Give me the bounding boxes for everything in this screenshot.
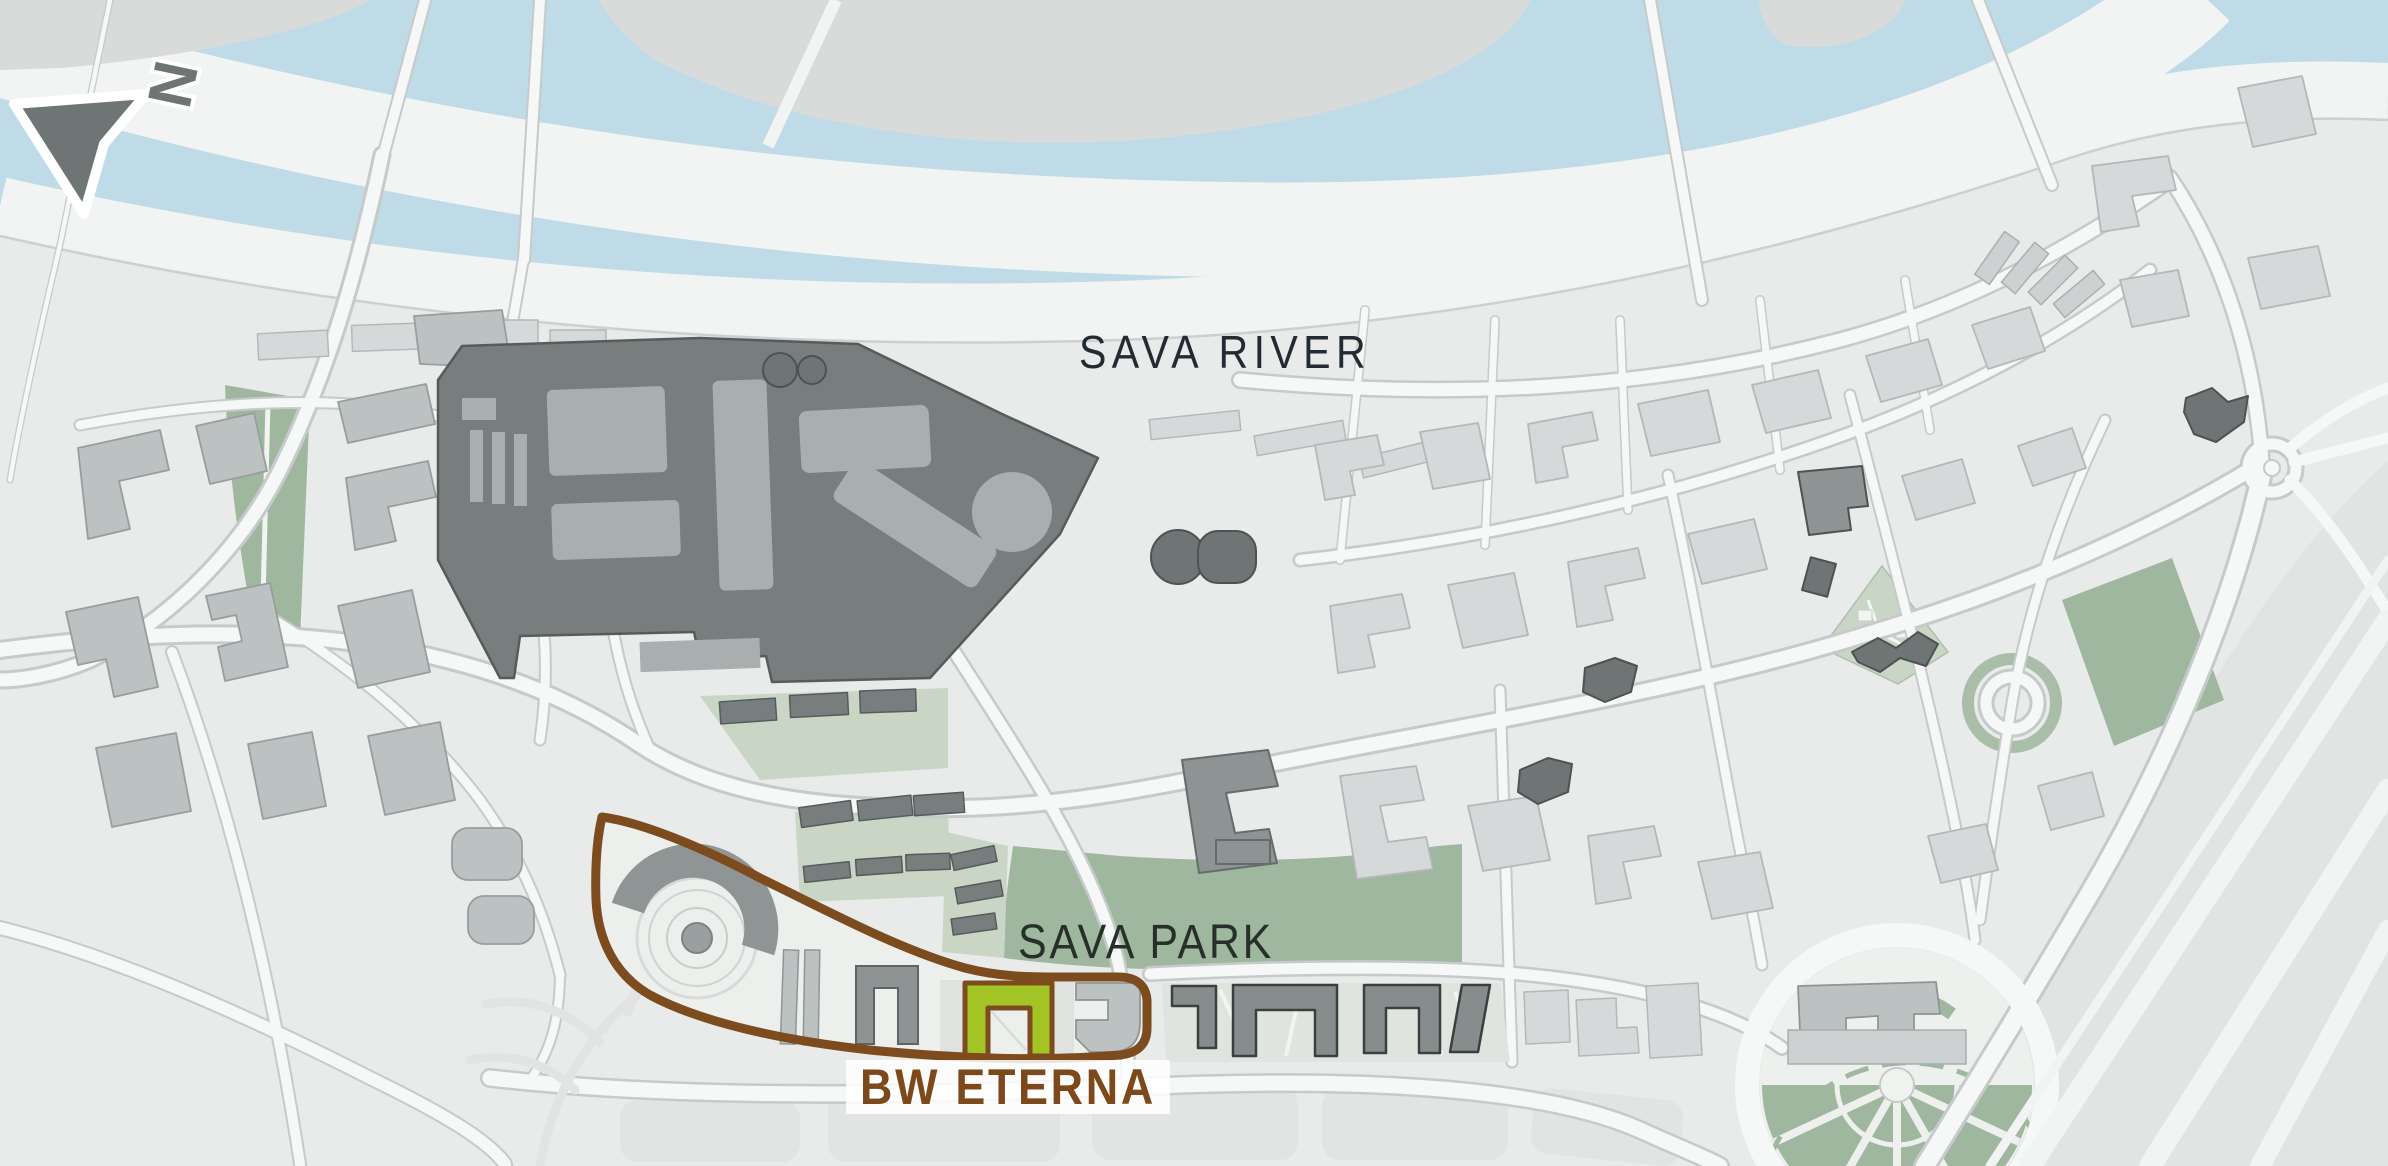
label-sava-river: SAVA RIVER: [1079, 326, 1371, 378]
site-plan-svg: SAVA RIVER SAVA PARK BW ETERNA N: [0, 0, 2388, 1166]
site-plan-map: SAVA RIVER SAVA PARK BW ETERNA N: [0, 0, 2388, 1166]
svg-text:BW ETERNA: BW ETERNA: [860, 1059, 1156, 1115]
label-bw-eterna: BW ETERNA: [846, 1059, 1170, 1115]
label-sava-park: SAVA PARK: [1018, 916, 1274, 969]
kula-tower: [1151, 530, 1256, 584]
